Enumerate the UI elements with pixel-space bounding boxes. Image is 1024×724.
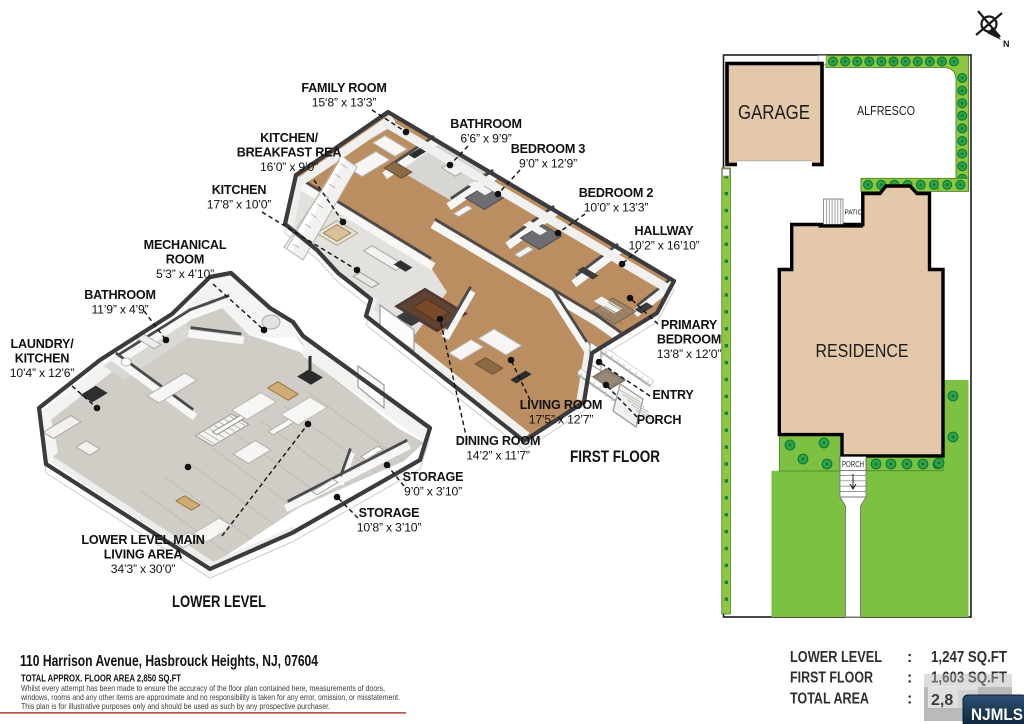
svg-text:10’0” x 13’3”: 10’0” x 13’3” bbox=[584, 201, 649, 215]
svg-text:LIVING AREA: LIVING AREA bbox=[104, 548, 183, 562]
svg-text:LAUNDRY/: LAUNDRY/ bbox=[11, 337, 75, 351]
svg-text:PATIO: PATIO bbox=[845, 208, 863, 217]
svg-text:PRIMARY: PRIMARY bbox=[661, 318, 718, 332]
svg-text:BEDROOM 3: BEDROOM 3 bbox=[511, 142, 586, 156]
svg-text:FIRST FLOOR: FIRST FLOOR bbox=[570, 448, 660, 466]
svg-text:LOWER LEVEL: LOWER LEVEL bbox=[172, 593, 266, 611]
svg-text:15‘8” x 13’3”: 15‘8” x 13’3” bbox=[312, 96, 377, 110]
svg-text:HALLWAY: HALLWAY bbox=[634, 224, 694, 238]
svg-text:ROOM: ROOM bbox=[166, 253, 204, 267]
svg-text:MECHANICAL: MECHANICAL bbox=[144, 238, 227, 252]
svg-text:FIRST FLOOR: FIRST FLOOR bbox=[790, 670, 873, 687]
svg-text:10’8” x 3’10”: 10’8” x 3’10” bbox=[357, 521, 422, 535]
svg-text:BREAKFAST REA: BREAKFAST REA bbox=[237, 146, 342, 160]
svg-text:110 Harrison Avenue, Hasbrouck: 110 Harrison Avenue, Hasbrouck Heights, … bbox=[20, 653, 318, 670]
svg-text:PORCH: PORCH bbox=[842, 460, 864, 469]
svg-text:N: N bbox=[1003, 39, 1010, 49]
svg-text:BEDROOM: BEDROOM bbox=[657, 333, 721, 347]
svg-text:This plan is for illustrative: This plan is for illustrative purposes o… bbox=[21, 701, 330, 711]
svg-text::: : bbox=[907, 691, 912, 708]
svg-text:BEDROOM 2: BEDROOM 2 bbox=[579, 186, 654, 200]
svg-text:LOWER LEVEL: LOWER LEVEL bbox=[790, 649, 882, 666]
svg-text:1,247 SQ.FT: 1,247 SQ.FT bbox=[931, 649, 1007, 666]
svg-text:ALFRESCO: ALFRESCO bbox=[857, 104, 915, 118]
svg-text:DINING ROOM: DINING ROOM bbox=[456, 434, 541, 448]
svg-text:KITCHEN: KITCHEN bbox=[212, 183, 267, 197]
svg-text:6’6” x 9’9”: 6’6” x 9’9” bbox=[460, 132, 511, 146]
svg-text:NJMLS: NJMLS bbox=[971, 705, 1023, 724]
svg-text:9’0” x 12’9”: 9’0” x 12’9” bbox=[519, 157, 577, 171]
svg-text::: : bbox=[907, 649, 912, 666]
svg-text:10’2” x 16’10”: 10’2” x 16’10” bbox=[628, 239, 699, 253]
svg-text:LIVING ROOM: LIVING ROOM bbox=[520, 398, 602, 412]
svg-text:TOTAL AREA: TOTAL AREA bbox=[790, 691, 869, 708]
svg-text:RESIDENCE: RESIDENCE bbox=[816, 341, 909, 361]
svg-text:14’2” x 11’7”: 14’2” x 11’7” bbox=[466, 449, 530, 463]
svg-text:2,8: 2,8 bbox=[931, 692, 953, 709]
svg-text:FAMILY ROOM: FAMILY ROOM bbox=[301, 81, 386, 95]
svg-text:16’0” x 9’0”: 16’0” x 9’0” bbox=[260, 160, 318, 174]
svg-text:17’8” x 10’0”: 17’8” x 10’0” bbox=[207, 198, 272, 212]
svg-text:34’3” x 30’0”: 34’3” x 30’0” bbox=[111, 562, 176, 576]
svg-text:13’8” x 12’0”: 13’8” x 12’0” bbox=[657, 347, 722, 361]
svg-text:KITCHEN/: KITCHEN/ bbox=[260, 131, 319, 145]
svg-text:STORAGE: STORAGE bbox=[359, 506, 420, 520]
svg-text::: : bbox=[907, 670, 912, 687]
svg-text:KITCHEN: KITCHEN bbox=[15, 352, 70, 366]
svg-text:9’0” x 3’10”: 9’0” x 3’10” bbox=[404, 485, 462, 499]
svg-text:ENTRY: ENTRY bbox=[652, 388, 694, 402]
svg-text:10’4” x 12’6”: 10’4” x 12’6” bbox=[10, 366, 75, 380]
svg-text:PORCH: PORCH bbox=[637, 413, 682, 427]
svg-text:STORAGE: STORAGE bbox=[403, 470, 464, 484]
svg-text:GARAGE: GARAGE bbox=[738, 102, 810, 124]
svg-text:11’9” x 4’9”: 11’9” x 4’9” bbox=[92, 303, 149, 317]
svg-text:BATHROOM: BATHROOM bbox=[84, 288, 156, 302]
svg-text:5’3” x 4’10”: 5’3” x 4’10” bbox=[156, 267, 214, 281]
svg-text:LOWER LEVEL MAIN: LOWER LEVEL MAIN bbox=[81, 533, 204, 547]
svg-text:BATHROOM: BATHROOM bbox=[450, 117, 522, 131]
svg-text:17’5” x 12’7”: 17’5” x 12’7” bbox=[529, 413, 594, 427]
